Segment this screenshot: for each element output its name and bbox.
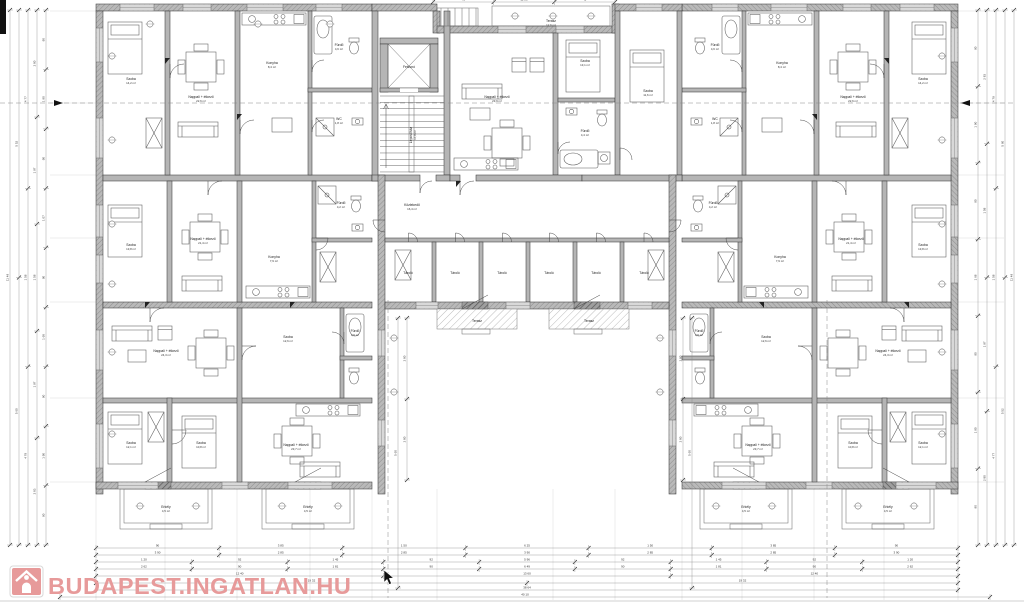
window: [247, 4, 283, 11]
room-label: Nappali + étkező23,7 m²: [745, 443, 770, 451]
mouse-cursor: [384, 570, 394, 585]
room-label: Erkély4,5 m²: [303, 505, 313, 513]
opening-tag-icon: [938, 53, 947, 59]
svg-text:11 49: 11 49: [1010, 274, 1014, 282]
opening-tag-icon: [108, 53, 117, 59]
room-label: Erkély4,5 m²: [741, 505, 751, 513]
svg-text:6 25: 6 25: [524, 544, 530, 548]
svg-text:2 85: 2 85: [647, 551, 653, 555]
svg-text:2 80: 2 80: [679, 436, 683, 442]
opening-tag-icon: [136, 503, 145, 509]
room-label: Fürdő4,4 m²: [581, 129, 590, 137]
room-label: Szoba10,8 m²: [196, 441, 206, 449]
window: [951, 28, 958, 62]
window: [506, 302, 530, 309]
room-label: Tároló: [450, 271, 460, 275]
room-label: Szoba14,2 m²: [126, 77, 136, 85]
svg-text:5 96: 5 96: [524, 558, 530, 562]
opening-tag-icon: [108, 431, 117, 437]
window: [96, 255, 103, 283]
svg-text:1 45: 1 45: [333, 558, 339, 562]
room-label: Erkély4,5 m²: [161, 505, 171, 513]
dimension-chain: 5 525 60: [15, 8, 22, 547]
room-label: Konyha8,4 m²: [776, 61, 788, 69]
room-label: Nappali + étkező21,4 m²: [190, 237, 215, 245]
window: [951, 118, 958, 158]
room-label: Fürdő4,2 m²: [337, 201, 346, 209]
right-wing: [682, 4, 958, 529]
room-label: Nappali + étkező22,6 m²: [840, 95, 865, 103]
svg-text:90: 90: [895, 544, 899, 548]
svg-text:2 80: 2 80: [33, 60, 37, 66]
room-label: Szoba12,6 m²: [761, 335, 771, 343]
svg-text:1 58: 1 58: [24, 274, 28, 280]
dimension-chain: 2 831 581 972 80: [983, 8, 990, 547]
window: [669, 420, 676, 446]
room-label: Szoba13,8 m²: [918, 243, 928, 251]
svg-text:90: 90: [621, 565, 625, 569]
window: [120, 4, 154, 11]
svg-text:1 81: 1 81: [716, 565, 722, 569]
svg-text:5 60: 5 60: [688, 450, 692, 456]
window: [900, 4, 934, 11]
room-label: Szoba13,8 m²: [126, 243, 136, 251]
window: [712, 4, 738, 11]
room-label: Szoba10,8 m²: [848, 441, 858, 449]
window: [288, 482, 332, 489]
opening-tag-icon: [254, 21, 263, 27]
svg-text:1 50: 1 50: [647, 544, 653, 548]
window: [498, 26, 526, 33]
dimension-chain: 2 802 80: [679, 316, 686, 482]
window: [316, 4, 342, 11]
room-label: Fürdő4,6 m²: [335, 43, 344, 51]
svg-text:2 85: 2 85: [278, 551, 284, 555]
svg-text:45: 45: [462, 0, 466, 2]
opening-tag-icon: [587, 13, 596, 19]
svg-text:11 49: 11 49: [6, 274, 10, 282]
dimension-chain: 5 605 52: [1001, 8, 1008, 547]
opening-tag-icon: [938, 431, 947, 437]
watermark: BUDAPEST.INGATLAN.HU: [10, 566, 351, 599]
svg-text:1 58: 1 58: [33, 274, 37, 280]
center-block: [372, 4, 682, 494]
opening-tag-icon: [278, 503, 287, 509]
svg-text:1 90: 1 90: [42, 453, 46, 459]
opening-tag-icon: [108, 281, 117, 287]
dimension-chain: 4 791 584 77: [992, 8, 999, 547]
window: [951, 255, 958, 283]
room-label: Konyha7,9 m²: [268, 255, 280, 263]
room-label: Szoba11,6 m²: [643, 89, 653, 97]
svg-text:1 90: 1 90: [42, 96, 46, 102]
svg-text:90: 90: [42, 157, 46, 161]
room-label: Erkély4,5 m²: [883, 505, 893, 513]
svg-text:1 81: 1 81: [333, 565, 339, 569]
corner-mark: [0, 0, 6, 34]
svg-text:4 79: 4 79: [24, 453, 28, 459]
opening-tag-icon: [334, 503, 343, 509]
svg-text:3 90: 3 90: [155, 551, 161, 555]
window: [806, 482, 832, 489]
svg-text:90: 90: [974, 505, 978, 509]
room-label: Tároló: [544, 271, 554, 275]
doors-layer: [373, 142, 681, 242]
house-icon: [10, 566, 43, 597]
room-label: Fürdő3,9 m²: [695, 329, 704, 337]
svg-text:1 68: 1 68: [42, 334, 46, 340]
window: [556, 26, 584, 33]
opening-tag-icon: [712, 503, 721, 509]
room-label: Konyha7,9 m²: [774, 255, 786, 263]
svg-text:90: 90: [974, 199, 978, 203]
window: [222, 482, 248, 489]
svg-text:90: 90: [238, 565, 242, 569]
floorplan-screenshot: 903 851 506 251 503 85903 902 852 853 90…: [0, 0, 1024, 603]
svg-text:1 50: 1 50: [401, 544, 407, 548]
svg-text:38 64: 38 64: [523, 586, 531, 590]
dimension-chain: 4511 8045: [431, 0, 617, 5]
svg-text:5 60: 5 60: [1001, 141, 1005, 147]
window: [416, 302, 438, 309]
svg-text:90: 90: [430, 565, 434, 569]
dimension-chain: 2 801 971 581 972 83: [33, 8, 40, 547]
dimension-chain: 901 90901 68901 9090: [974, 8, 981, 547]
svg-text:90: 90: [42, 513, 46, 517]
svg-text:3 90: 3 90: [894, 551, 900, 555]
opening-tag-icon: [768, 503, 777, 509]
window: [378, 420, 385, 446]
window: [951, 424, 958, 468]
room-label: Fürdő4,6 m²: [711, 43, 720, 51]
room-label: Felvonó: [403, 65, 415, 69]
svg-text:12 40: 12 40: [811, 572, 819, 576]
dimension-chain: 11 49: [1010, 8, 1017, 547]
svg-text:2 83: 2 83: [33, 488, 37, 494]
svg-text:90: 90: [156, 544, 160, 548]
svg-text:2 85: 2 85: [770, 551, 776, 555]
svg-text:13 60: 13 60: [523, 572, 531, 576]
opening-tag-icon: [146, 21, 155, 27]
svg-text:90: 90: [813, 565, 817, 569]
window: [96, 424, 103, 468]
room-label: WC1,8 m²: [335, 117, 343, 125]
window: [96, 118, 103, 158]
svg-text:90: 90: [42, 38, 46, 42]
svg-text:1 68: 1 68: [974, 274, 978, 280]
svg-text:90: 90: [42, 394, 46, 398]
svg-text:5 60: 5 60: [15, 408, 19, 414]
svg-text:1 20: 1 20: [907, 558, 913, 562]
svg-text:92: 92: [238, 558, 242, 562]
window: [96, 330, 103, 370]
svg-text:2 80: 2 80: [403, 355, 407, 361]
room-label: Terasz12,6 m²: [546, 19, 556, 27]
window: [843, 4, 871, 11]
svg-text:90: 90: [42, 276, 46, 280]
svg-text:1 45: 1 45: [716, 558, 722, 562]
opening-tag-icon: [938, 137, 947, 143]
window: [951, 205, 958, 237]
room-label: Terasz: [472, 319, 482, 323]
svg-text:3 85: 3 85: [770, 544, 776, 548]
opening-tag-icon: [511, 13, 520, 19]
opening-tag-icon: [656, 389, 665, 395]
svg-text:2 62: 2 62: [907, 565, 913, 569]
room-label: Szoba13,1 m²: [580, 59, 590, 67]
room-label: Tároló: [497, 271, 507, 275]
room-label: Fürdő4,2 m²: [709, 201, 718, 209]
svg-text:2 83: 2 83: [983, 74, 987, 80]
window: [628, 302, 652, 309]
window: [378, 330, 385, 356]
room-label: Terasz: [584, 319, 594, 323]
svg-text:92: 92: [430, 558, 434, 562]
top-balcony: [437, 8, 478, 26]
svg-text:1 90: 1 90: [974, 427, 978, 433]
dimension-chain: 11 49: [6, 8, 13, 547]
svg-text:3 85: 3 85: [278, 544, 284, 548]
svg-text:11 80: 11 80: [520, 0, 528, 2]
svg-text:2 80: 2 80: [679, 355, 683, 361]
svg-text:19 32: 19 32: [739, 579, 747, 583]
svg-text:92: 92: [813, 558, 817, 562]
room-label: Szoba12,1 m²: [918, 441, 928, 449]
window: [636, 4, 662, 11]
room-label: Nappali + étkező24,3 m²: [153, 349, 178, 357]
room-label: Közlekedő16,4 m²: [404, 203, 420, 211]
svg-text:5 52: 5 52: [1001, 408, 1005, 414]
opening-tag-icon: [938, 349, 947, 355]
dimension-chain: 901 90901 07901 68901 9090: [42, 8, 49, 547]
room-label: Tároló: [639, 271, 649, 275]
window: [118, 482, 158, 489]
svg-text:92: 92: [621, 558, 625, 562]
svg-text:5 52: 5 52: [15, 141, 19, 147]
dimension-chain: 2 802 80: [403, 316, 410, 482]
room-label: Nappali + étkező21,4 m²: [838, 237, 863, 245]
svg-text:4 77: 4 77: [24, 96, 28, 102]
window: [722, 482, 766, 489]
dimension-chain: 4 771 584 79: [24, 8, 31, 547]
room-label: Szoba12,6 m²: [283, 335, 293, 343]
svg-text:6 49: 6 49: [524, 565, 530, 569]
dimension-chain: 5 60: [394, 316, 401, 590]
svg-text:2 85: 2 85: [401, 551, 407, 555]
room-label: WC1,8 m²: [711, 117, 719, 125]
room-label: Tároló: [403, 271, 413, 275]
window: [951, 330, 958, 370]
floor-plan: 903 851 506 251 503 85903 902 852 853 90…: [0, 0, 1024, 603]
svg-text:4 79: 4 79: [992, 96, 996, 102]
svg-text:3 90: 3 90: [524, 551, 530, 555]
room-label: Tároló: [591, 271, 601, 275]
opening-tag-icon: [390, 389, 399, 395]
room-label: Lépcsőház17,8 m²: [409, 126, 417, 143]
window: [771, 4, 807, 11]
room-label: Szoba12,1 m²: [126, 441, 136, 449]
room-label: Nappali + étkező23,7 m²: [283, 443, 308, 451]
opening-tag-icon: [390, 335, 399, 341]
svg-text:5 60: 5 60: [394, 450, 398, 456]
svg-text:1 97: 1 97: [33, 381, 37, 387]
opening-tag-icon: [854, 503, 863, 509]
window: [96, 205, 103, 237]
svg-text:90: 90: [974, 46, 978, 50]
svg-text:2 62: 2 62: [141, 565, 147, 569]
svg-text:1 07: 1 07: [42, 215, 46, 221]
window: [669, 330, 676, 356]
svg-text:2 80: 2 80: [403, 436, 407, 442]
opening-tag-icon: [910, 503, 919, 509]
watermark-text: BUDAPEST.INGATLAN.HU: [48, 573, 351, 599]
room-label: Fürdő3,9 m²: [351, 329, 360, 337]
svg-text:1 97: 1 97: [983, 341, 987, 347]
svg-text:4 77: 4 77: [992, 453, 996, 459]
opening-tag-icon: [938, 281, 947, 287]
window: [896, 482, 936, 489]
svg-text:2 80: 2 80: [983, 475, 987, 481]
opening-tag-icon: [108, 137, 117, 143]
left-wing: [96, 4, 372, 529]
svg-text:1 58: 1 58: [992, 274, 996, 280]
opening-tag-icon: [108, 349, 117, 355]
svg-text:45: 45: [583, 0, 587, 2]
opening-tag-icon: [192, 503, 201, 509]
room-label: Nappali + étkező24,3 m²: [875, 349, 900, 357]
svg-text:40 10: 40 10: [521, 593, 529, 597]
svg-text:1 20: 1 20: [141, 558, 147, 562]
window: [183, 4, 211, 11]
svg-text:1 90: 1 90: [974, 121, 978, 127]
room-label: Szoba14,2 m²: [918, 77, 928, 85]
dimension-layer: 903 851 506 251 503 85903 902 852 853 90…: [6, 0, 1017, 600]
section-marker: [961, 100, 970, 106]
section-marker: [54, 100, 63, 106]
room-label: Nappali + étkező22,6 m²: [188, 95, 213, 103]
svg-text:1 58: 1 58: [983, 207, 987, 213]
svg-text:1 97: 1 97: [33, 167, 37, 173]
svg-text:90: 90: [974, 352, 978, 356]
window: [96, 28, 103, 62]
room-label: Konyha8,4 m²: [266, 61, 278, 69]
opening-tag-icon: [656, 335, 665, 341]
